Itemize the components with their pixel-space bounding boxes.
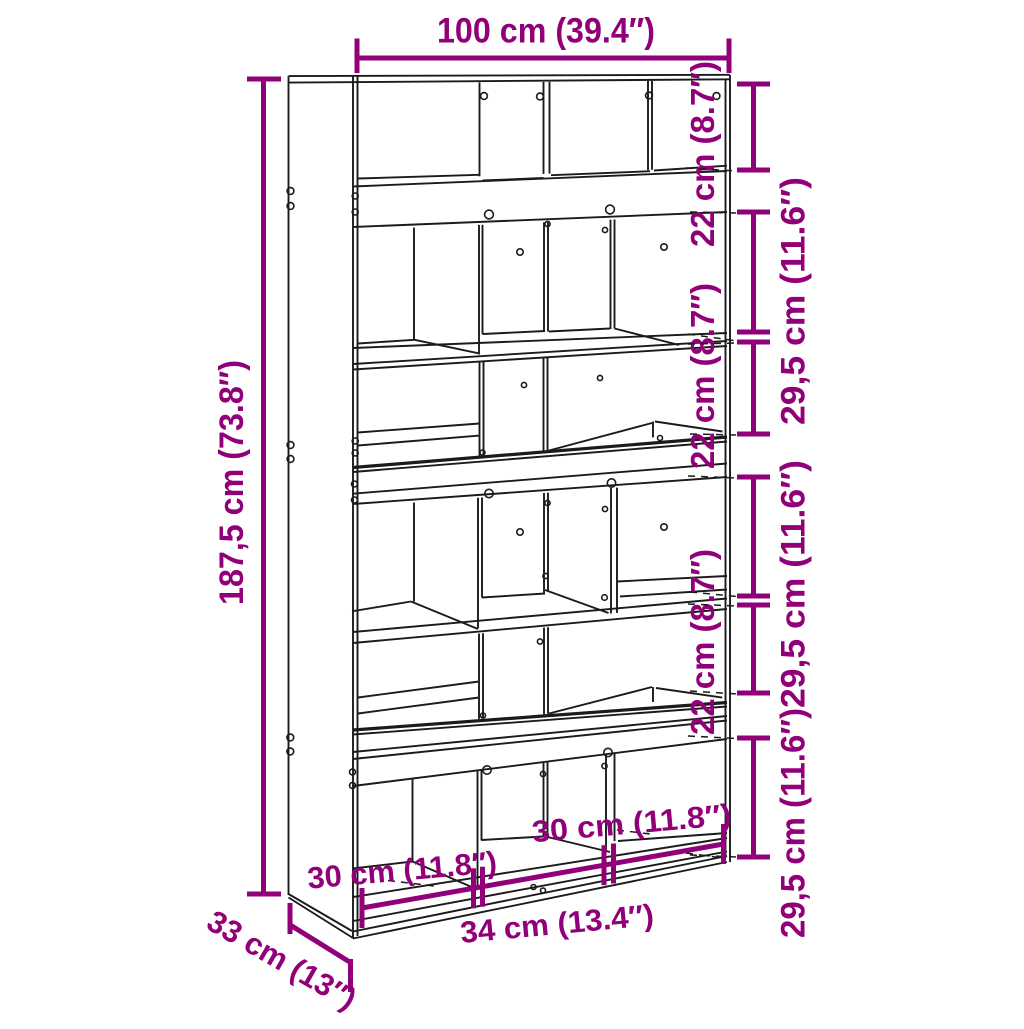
svg-text:22 cm (8.7″): 22 cm (8.7″) (684, 549, 721, 735)
svg-text:29,5 cm (11.6″): 29,5 cm (11.6″) (775, 460, 813, 708)
svg-text:100 cm (39.4″): 100 cm (39.4″) (437, 11, 655, 51)
svg-text:22 cm (8.7″): 22 cm (8.7″) (684, 283, 721, 469)
svg-text:29,5 cm (11.6″): 29,5 cm (11.6″) (775, 177, 813, 425)
svg-text:22 cm (8.7″): 22 cm (8.7″) (684, 61, 721, 247)
svg-text:29,5 cm (11.6″): 29,5 cm (11.6″) (775, 708, 813, 938)
svg-text:187,5 cm (73.8″): 187,5 cm (73.8″) (213, 360, 251, 605)
